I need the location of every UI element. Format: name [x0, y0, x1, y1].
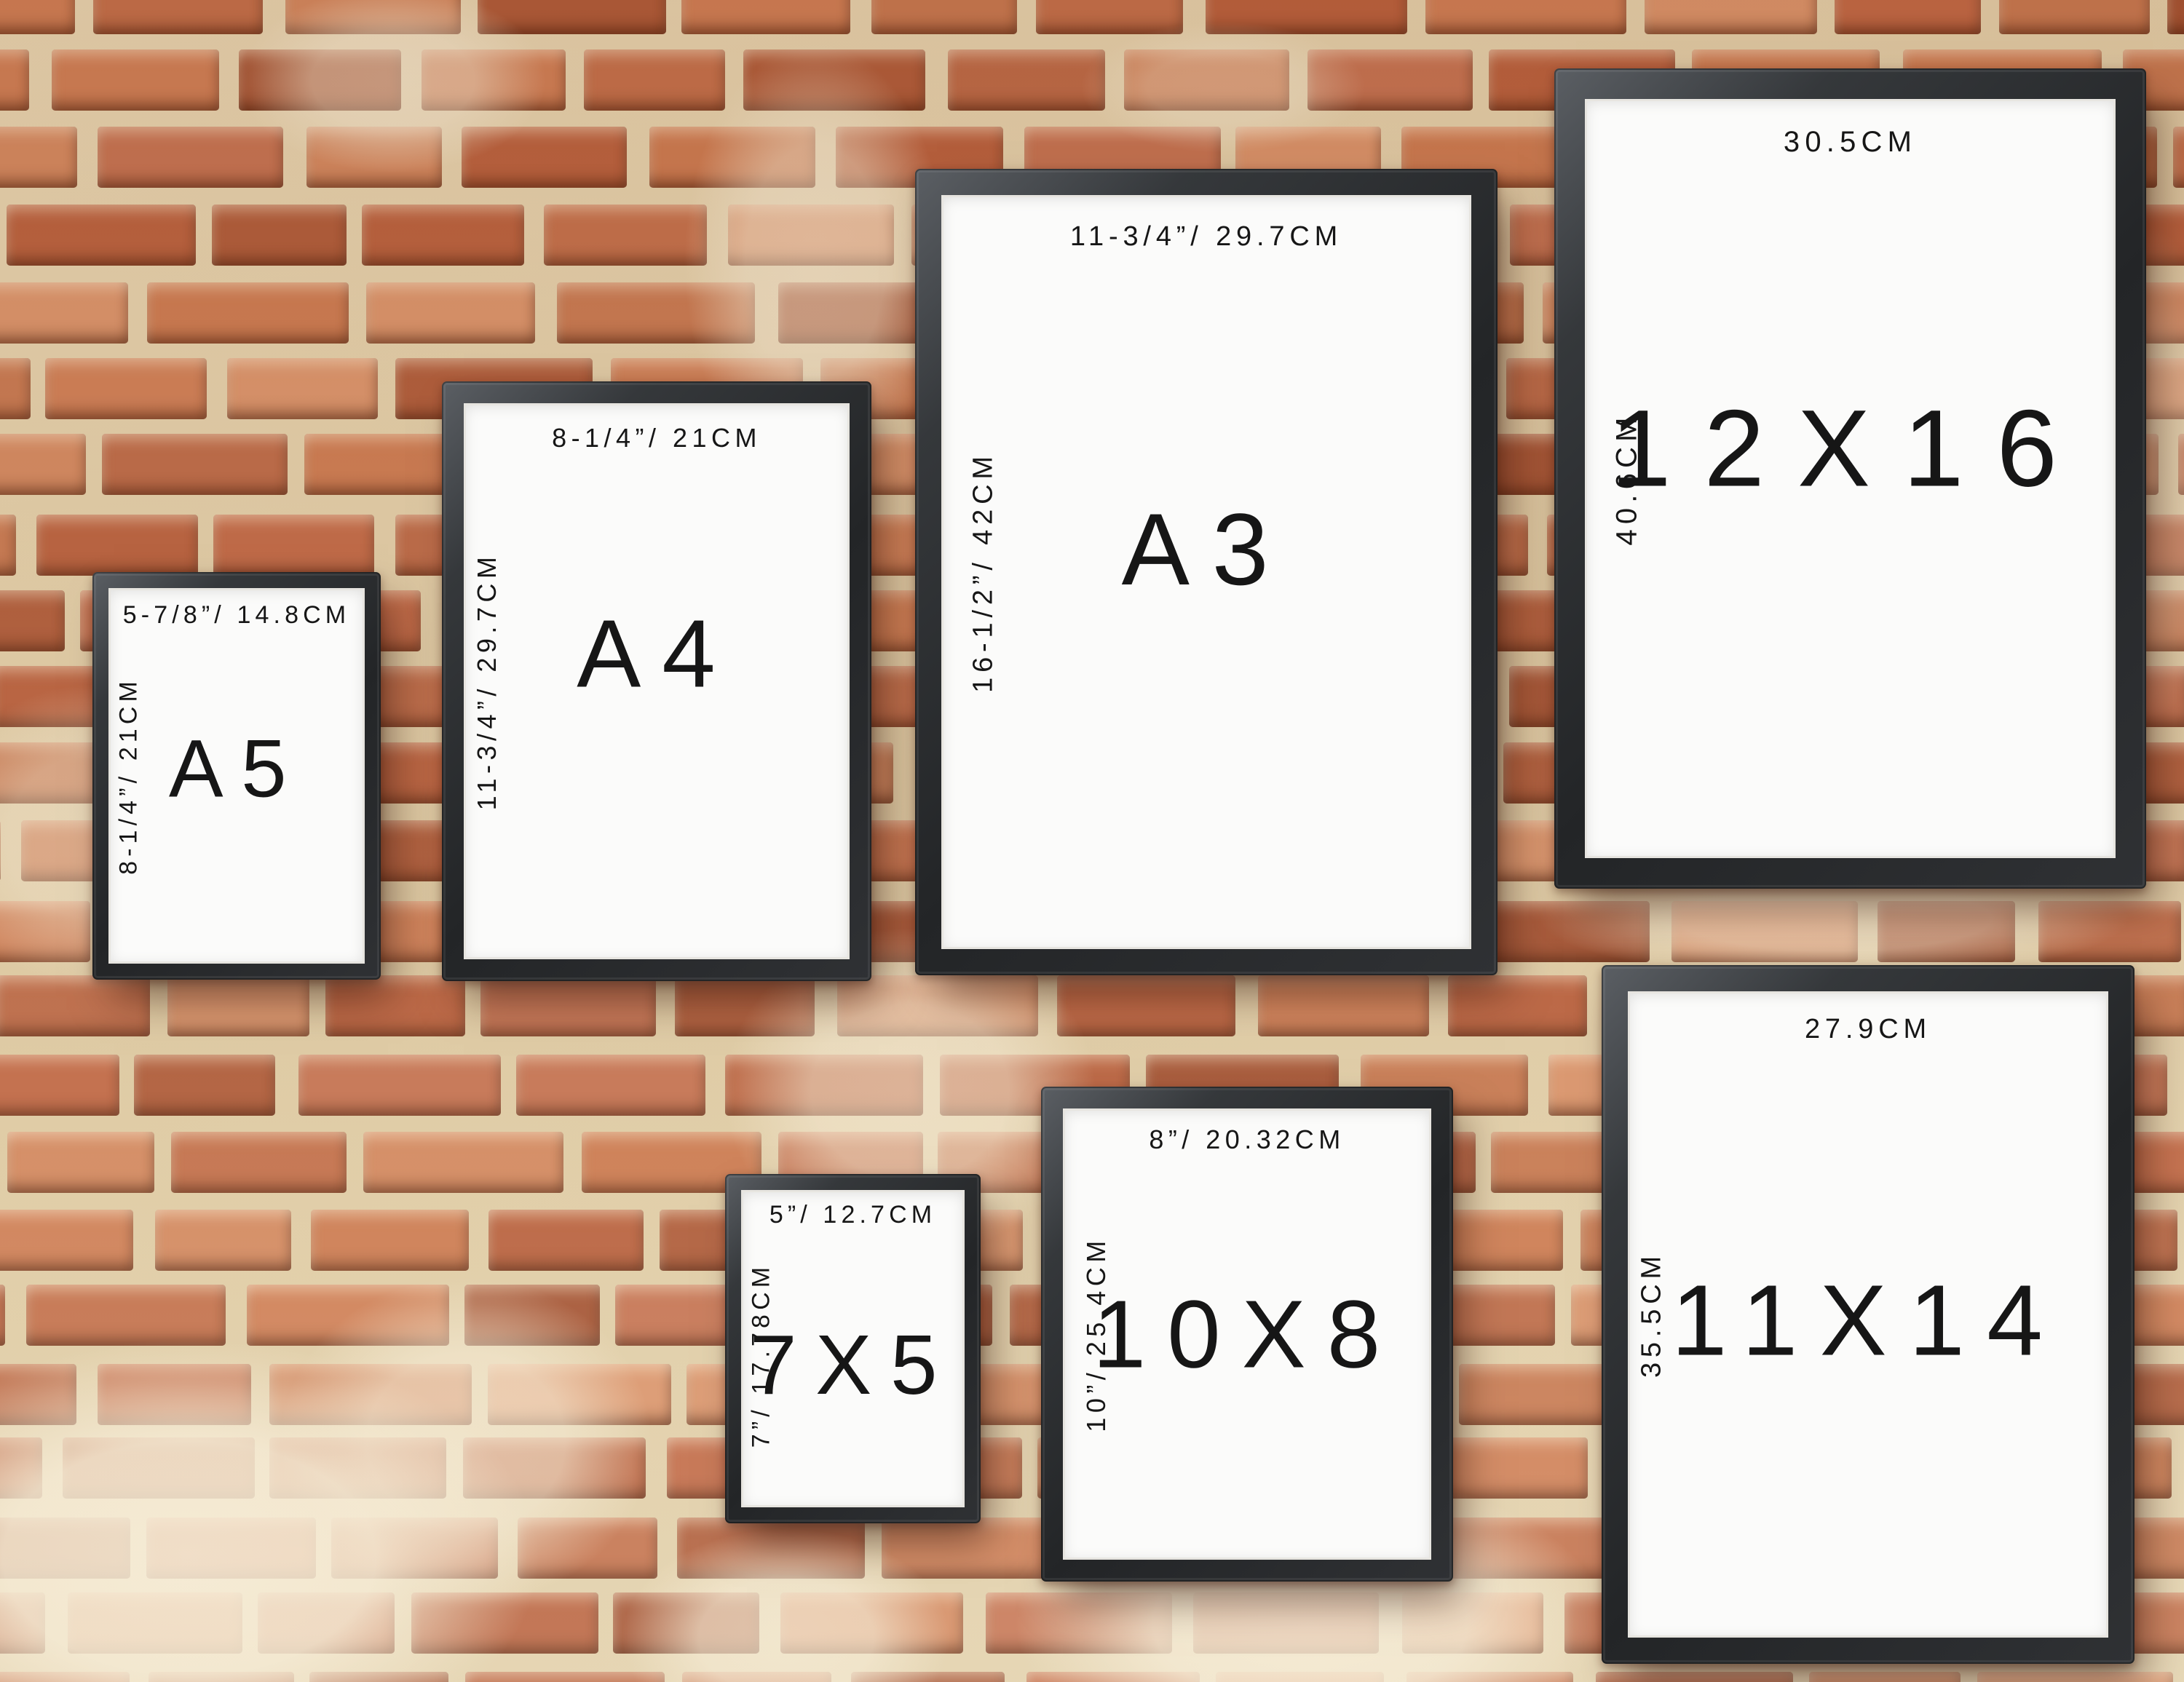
brick — [478, 0, 666, 34]
brick — [743, 49, 925, 111]
brick — [298, 1055, 501, 1116]
brick — [0, 127, 77, 188]
brick — [167, 975, 309, 1036]
print-size-guide-photo: { "scene": { "background": "red brick wa… — [0, 0, 2184, 1682]
brick — [7, 1132, 154, 1193]
brick — [544, 205, 707, 266]
brick — [1878, 901, 2015, 962]
brick — [1809, 1672, 1961, 1682]
brick — [584, 49, 725, 111]
brick — [986, 1592, 1172, 1654]
brick — [725, 1055, 923, 1116]
frame-a4-height-label: 11-3/4”/ 29.7CM — [472, 552, 502, 811]
brick — [0, 1592, 45, 1654]
brick — [851, 1672, 1005, 1682]
brick — [463, 1437, 646, 1499]
brick — [0, 434, 86, 495]
brick — [0, 1672, 130, 1682]
frame-a3-paper: 11-3/4”/ 29.7CM 16-1/2”/ 42CM A3 — [941, 195, 1471, 949]
brick — [258, 1592, 395, 1654]
brick — [247, 1285, 449, 1346]
brick — [269, 1364, 472, 1425]
brick — [98, 1364, 251, 1425]
brick — [213, 515, 374, 576]
brick — [2173, 127, 2184, 188]
brick — [1835, 0, 1981, 34]
frame-11x14-width-label: 27.9CM — [1805, 1014, 1931, 1045]
brick — [422, 49, 566, 111]
brick — [149, 1672, 294, 1682]
brick — [0, 358, 31, 419]
frame-a3-width-label: 11-3/4”/ 29.7CM — [1070, 221, 1342, 253]
frame-10x8: 8”/ 20.32CM 10”/ 25.4CM 10X8 — [1041, 1087, 1453, 1582]
brick — [36, 515, 198, 576]
brick — [2178, 434, 2184, 495]
brick — [465, 1672, 665, 1682]
brick — [0, 515, 16, 576]
brick — [68, 1592, 242, 1654]
brick — [1437, 1437, 1588, 1499]
frame-10x8-paper: 8”/ 20.32CM 10”/ 25.4CM 10X8 — [1063, 1108, 1431, 1560]
frame-7x5-size-name: 7X5 — [750, 1316, 956, 1413]
brick — [0, 0, 75, 34]
frame-7x5: 5”/ 12.7CM 7”/ 17.78CM 7X5 — [725, 1174, 981, 1523]
frame-a3-height-label: 16-1/2”/ 42CM — [968, 451, 1000, 693]
frame-12x16-paper: 30.5CM 40.6CM 12X16 — [1585, 99, 2116, 858]
brick — [146, 1518, 316, 1579]
brick — [227, 358, 378, 419]
brick — [1206, 0, 1407, 34]
brick — [1026, 1672, 1200, 1682]
brick — [309, 1672, 448, 1682]
brick — [1258, 975, 1429, 1036]
frame-a4-width-label: 8-1/4”/ 21CM — [552, 423, 761, 453]
frame-11x14-height-label: 35.5CM — [1637, 1251, 1668, 1378]
brick — [0, 820, 1, 881]
brick — [1448, 975, 1587, 1036]
brick — [0, 742, 96, 804]
brick — [682, 1672, 831, 1682]
brick — [0, 1055, 119, 1116]
frame-a5: 5-7/8”/ 14.8CM 8-1/4”/ 21CM A5 — [92, 572, 381, 980]
brick — [681, 0, 850, 34]
brick — [155, 1210, 291, 1271]
brick — [1124, 49, 1289, 111]
brick — [411, 1592, 598, 1654]
brick — [325, 975, 465, 1036]
brick — [26, 1285, 226, 1346]
brick — [1216, 1672, 1384, 1682]
brick — [102, 434, 288, 495]
frame-11x14-paper: 27.9CM 35.5CM 11X14 — [1628, 991, 2108, 1638]
brick — [488, 1210, 644, 1271]
brick — [0, 901, 90, 962]
brick — [1057, 975, 1235, 1036]
brick — [2167, 0, 2184, 34]
brick — [1671, 901, 1858, 962]
brick — [362, 205, 524, 266]
frame-a3-size-name: A3 — [1122, 491, 1291, 608]
brick — [1402, 1592, 1543, 1654]
frame-11x14-size-name: 11X14 — [1671, 1263, 2065, 1378]
brick — [948, 49, 1105, 111]
brick — [0, 590, 65, 651]
brick — [675, 975, 815, 1036]
brick — [1036, 0, 1183, 34]
frame-a5-paper: 5-7/8”/ 14.8CM 8-1/4”/ 21CM A5 — [108, 588, 365, 964]
brick — [780, 1592, 963, 1654]
frame-a3: 11-3/4”/ 29.7CM 16-1/2”/ 42CM A3 — [915, 169, 1497, 975]
brick — [366, 282, 535, 344]
frame-10x8-width-label: 8”/ 20.32CM — [1149, 1124, 1345, 1155]
brick — [98, 127, 283, 188]
frame-a4-size-name: A4 — [577, 598, 737, 708]
brick — [269, 1437, 446, 1499]
frame-10x8-size-name: 10X8 — [1093, 1280, 1401, 1389]
frame-12x16-width-label: 30.5CM — [1784, 126, 1917, 159]
brick — [613, 1592, 759, 1654]
frame-11x14: 27.9CM 35.5CM 11X14 — [1602, 965, 2134, 1664]
brick — [557, 282, 755, 344]
brick — [7, 205, 196, 266]
brick — [147, 282, 349, 344]
brick — [516, 1055, 705, 1116]
brick — [518, 1518, 657, 1579]
frame-a5-width-label: 5-7/8”/ 14.8CM — [123, 601, 350, 630]
brick — [1645, 0, 1817, 34]
brick — [0, 1210, 133, 1271]
frame-12x16-size-name: 12X16 — [1610, 385, 2090, 511]
brick — [363, 1132, 563, 1193]
frame-12x16: 30.5CM 40.6CM 12X16 — [1554, 68, 2146, 889]
brick — [1459, 1364, 1617, 1425]
frame-7x5-paper: 5”/ 12.7CM 7”/ 17.78CM 7X5 — [741, 1190, 965, 1507]
brick — [1307, 49, 1473, 111]
brick — [1999, 0, 2150, 34]
brick — [728, 205, 894, 266]
frame-a5-height-label: 8-1/4”/ 21CM — [115, 677, 143, 875]
brick — [0, 1518, 130, 1579]
brick — [1425, 0, 1626, 34]
brick — [0, 1364, 76, 1425]
brick — [212, 205, 347, 266]
brick — [1977, 1672, 2173, 1682]
frame-a5-size-name: A5 — [169, 721, 304, 815]
brick — [677, 1518, 865, 1579]
brick — [488, 1364, 671, 1425]
brick — [331, 1518, 498, 1579]
brick — [480, 975, 656, 1036]
brick — [52, 49, 219, 111]
brick — [171, 1132, 347, 1193]
brick — [0, 49, 29, 111]
brick — [45, 358, 207, 419]
brick — [1193, 1592, 1379, 1654]
brick — [285, 0, 461, 34]
brick — [63, 1437, 255, 1499]
brick — [1406, 1672, 1573, 1682]
brick — [0, 975, 150, 1036]
brick — [837, 975, 1038, 1036]
frame-a4: 8-1/4”/ 21CM 11-3/4”/ 29.7CM A4 — [442, 381, 871, 981]
frame-7x5-width-label: 5”/ 12.7CM — [769, 1201, 936, 1229]
brick — [649, 127, 815, 188]
brick — [871, 0, 1017, 34]
brick — [2038, 901, 2181, 962]
brick — [239, 49, 401, 111]
brick — [0, 1285, 5, 1346]
brick — [0, 1437, 42, 1499]
brick — [1596, 1672, 1793, 1682]
brick — [134, 1055, 275, 1116]
brick — [464, 1285, 600, 1346]
brick — [311, 1210, 469, 1271]
brick — [306, 127, 442, 188]
brick — [0, 282, 128, 344]
frame-a4-paper: 8-1/4”/ 21CM 11-3/4”/ 29.7CM A4 — [464, 403, 850, 959]
brick — [462, 127, 627, 188]
brick — [93, 0, 263, 34]
